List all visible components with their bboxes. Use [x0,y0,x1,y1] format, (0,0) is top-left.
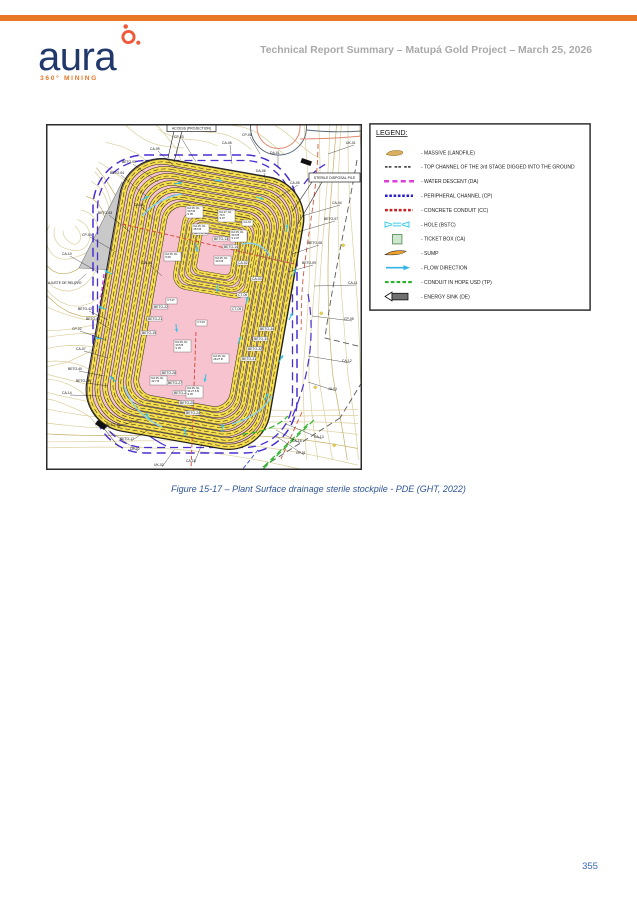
svg-text:LEGEND:: LEGEND: [376,128,408,137]
svg-text:STERILE DISPOSAL PILE: STERILE DISPOSAL PILE [314,176,356,180]
svg-text:CP-01: CP-01 [296,451,306,455]
svg-text:BETO-43: BETO-43 [98,211,112,215]
svg-text:CP-03: CP-03 [174,135,184,139]
svg-text:DA-04: DA-04 [142,261,152,265]
svg-text:- TICKET BOX (CA): - TICKET BOX (CA) [421,237,466,243]
svg-text:- TOP CHANNEL OF THE 3rd STAGE: - TOP CHANNEL OF THE 3rd STAGE DIGGED IN… [421,165,575,171]
svg-text:CA-02: CA-02 [238,261,248,265]
svg-text:CA-10: CA-10 [62,252,72,256]
svg-text:28.5 B: 28.5 B [193,227,201,231]
svg-text:S 06: S 06 [187,392,193,396]
svg-text:CA-15: CA-15 [186,459,196,463]
svg-text:AJUSTE DE RELEVO: AJUSTE DE RELEVO [48,281,82,285]
svg-text:- MASSIVE (LANDFILE): - MASSIVE (LANDFILE) [421,150,475,156]
svg-text:CT-03: CT-03 [197,320,205,324]
svg-text:BETO-25: BETO-25 [180,401,194,405]
svg-text:28.27 B: 28.27 B [213,357,222,361]
svg-text:BETO-39: BETO-39 [76,379,90,383]
svg-text:BETO-33: BETO-33 [254,337,268,341]
svg-text:CT-06: CT-06 [238,293,247,297]
svg-text:BETO-42: BETO-42 [78,307,92,311]
svg-text:BETO-13: BETO-13 [214,237,228,241]
svg-text:- FLOW DIRECTION: - FLOW DIRECTION [421,266,468,272]
svg-text:BETO-21: BETO-21 [148,317,162,321]
svg-text:CA-13: CA-13 [314,435,324,439]
svg-text:CA-06: CA-06 [222,141,232,145]
svg-text:CP-05: CP-05 [344,317,354,321]
svg-text:BETO-14: BETO-14 [224,245,238,249]
svg-text:BETO-05: BETO-05 [122,160,136,164]
svg-text:S 2.07: S 2.07 [231,236,239,240]
svg-text:- CONDUIT IN HOPE USD (TP): - CONDUIT IN HOPE USD (TP) [421,280,492,286]
svg-text:S 05: S 05 [175,346,181,350]
svg-text:CP-06: CP-06 [242,133,252,137]
svg-text:CA-04: CA-04 [332,201,342,205]
svg-text:DA-01: DA-01 [270,151,280,155]
svg-text:CA-14: CA-14 [62,391,72,395]
svg-text:BETO-16: BETO-16 [106,423,120,427]
svg-text:BETO-24: BETO-24 [186,411,200,415]
svg-text:CP-04: CP-04 [82,233,92,237]
svg-text:UK-01: UK-01 [346,141,356,145]
svg-text:CA-12: CA-12 [342,359,352,363]
svg-text:BETO-07: BETO-07 [324,217,338,221]
svg-text:CT-07: CT-07 [167,298,175,302]
svg-text:42.7 B: 42.7 B [151,379,159,383]
svg-text:- HOLE (BSTC): - HOLE (BSTC) [421,222,456,228]
svg-text:ACCESS (PROJECTION): ACCESS (PROJECTION) [172,126,211,130]
svg-text:JU-01: JU-01 [328,387,337,391]
svg-text:CT-05: CT-05 [232,307,241,311]
svg-text:BETO-40: BETO-40 [68,367,82,371]
svg-text:CA-01: CA-01 [243,220,251,224]
svg-text:30.5 B: 30.5 B [215,259,223,263]
svg-text:- ENERGY SINK (DE): - ENERGY SINK (DE) [421,294,470,300]
svg-text:- WATER DESCENT (DA): - WATER DESCENT (DA) [421,179,479,185]
svg-text:CA-07: CA-07 [76,347,86,351]
svg-text:CA-16: CA-16 [292,439,302,443]
svg-text:- CONCRETE CONDUIT (CC): - CONCRETE CONDUIT (CC) [421,208,488,214]
svg-text:UK-02: UK-02 [154,463,164,467]
svg-text:BETO-32: BETO-32 [248,347,262,351]
svg-text:DE-02: DE-02 [130,447,140,451]
svg-text:CA-03: CA-03 [252,277,262,281]
svg-text:CA-08: CA-08 [134,203,144,207]
svg-text:CA-09: CA-09 [150,147,160,151]
svg-text:BETO-22: BETO-22 [154,305,168,309]
svg-text:CA-11: CA-11 [348,281,357,285]
svg-text:BETO-27: BETO-27 [168,381,182,385]
svg-text:BETO-08: BETO-08 [308,241,322,245]
svg-text:DA-06: DA-06 [256,169,266,173]
svg-text:BETO-31: BETO-31 [242,357,256,361]
svg-text:- SUMP: - SUMP [421,251,439,257]
svg-text:BETO-17: BETO-17 [120,437,134,441]
svg-text:BETO-34: BETO-34 [260,327,274,331]
svg-text:S 07: S 07 [219,216,225,220]
svg-text:CP-02: CP-02 [72,327,82,331]
svg-text:BETO-09: BETO-09 [302,261,316,265]
svg-text:BETO-28: BETO-28 [162,371,176,375]
svg-text:5.08: 5.08 [165,255,171,259]
svg-text:BETO-19: BETO-19 [142,331,156,335]
svg-text:BETO-04: BETO-04 [110,171,124,175]
svg-text:- PERIPHERAL CHANNEL (CP): - PERIPHERAL CHANNEL (CP) [421,194,493,200]
svg-text:CA-05: CA-05 [290,181,300,185]
svg-text:S 05: S 05 [187,212,193,216]
svg-text:BETO-41: BETO-41 [86,317,100,321]
